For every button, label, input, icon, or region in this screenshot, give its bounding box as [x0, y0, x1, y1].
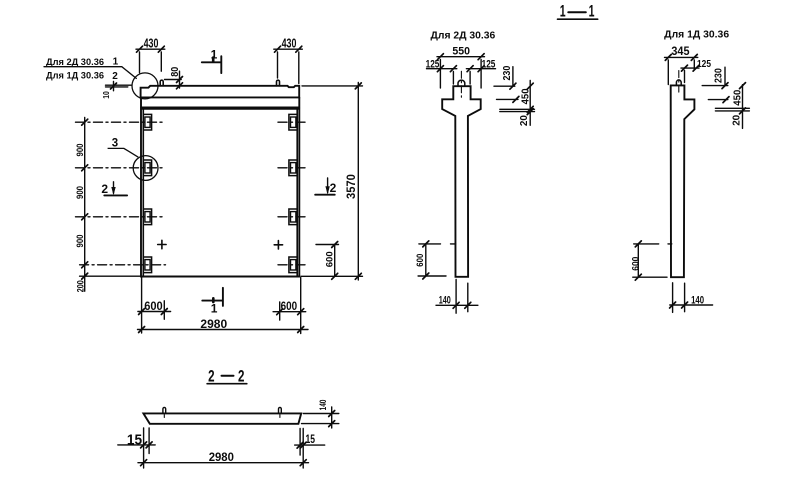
svg-text:10: 10	[101, 91, 111, 99]
svg-text:600: 600	[144, 301, 163, 313]
svg-text:345: 345	[671, 44, 689, 58]
svg-text:450: 450	[732, 90, 744, 106]
svg-text:550: 550	[452, 46, 470, 58]
svg-text:600: 600	[324, 251, 335, 267]
svg-text:1: 1	[560, 1, 566, 20]
svg-text:125: 125	[482, 59, 496, 71]
svg-text:Для 1Д 30.36: Для 1Д 30.36	[664, 29, 729, 40]
svg-text:Для 2Д 30.36: Для 2Д 30.36	[46, 57, 104, 68]
svg-text:900: 900	[75, 144, 85, 157]
svg-text:Для 2Д 30.36: Для 2Д 30.36	[431, 31, 496, 42]
svg-text:20: 20	[518, 115, 530, 126]
svg-text:430: 430	[282, 37, 297, 51]
svg-text:80: 80	[170, 66, 181, 76]
svg-text:2980: 2980	[209, 450, 235, 464]
svg-text:125: 125	[697, 58, 711, 70]
svg-text:15: 15	[127, 432, 142, 448]
svg-text:200: 200	[76, 280, 86, 292]
svg-text:600: 600	[415, 254, 426, 267]
svg-text:Для 1Д 30.36: Для 1Д 30.36	[46, 71, 104, 82]
svg-text:2: 2	[101, 182, 108, 196]
svg-text:1: 1	[211, 301, 218, 315]
svg-text:125: 125	[426, 59, 440, 71]
svg-text:1: 1	[211, 48, 218, 62]
svg-text:140: 140	[318, 400, 328, 411]
svg-text:230: 230	[501, 66, 513, 81]
svg-text:2: 2	[112, 71, 118, 82]
svg-text:430: 430	[144, 37, 159, 51]
svg-text:2: 2	[330, 181, 337, 195]
svg-text:230: 230	[713, 68, 725, 83]
svg-text:1: 1	[113, 57, 119, 68]
svg-text:140: 140	[691, 295, 704, 307]
svg-text:600: 600	[281, 301, 298, 313]
svg-text:900: 900	[75, 235, 85, 248]
svg-text:140: 140	[439, 294, 451, 306]
svg-text:15: 15	[306, 434, 316, 446]
svg-text:3570: 3570	[344, 174, 358, 199]
svg-text:600: 600	[630, 257, 641, 271]
svg-text:20: 20	[730, 115, 742, 126]
svg-text:450: 450	[519, 88, 531, 104]
svg-text:2980: 2980	[200, 317, 227, 331]
svg-text:900: 900	[75, 186, 85, 199]
svg-text:1: 1	[589, 1, 595, 20]
